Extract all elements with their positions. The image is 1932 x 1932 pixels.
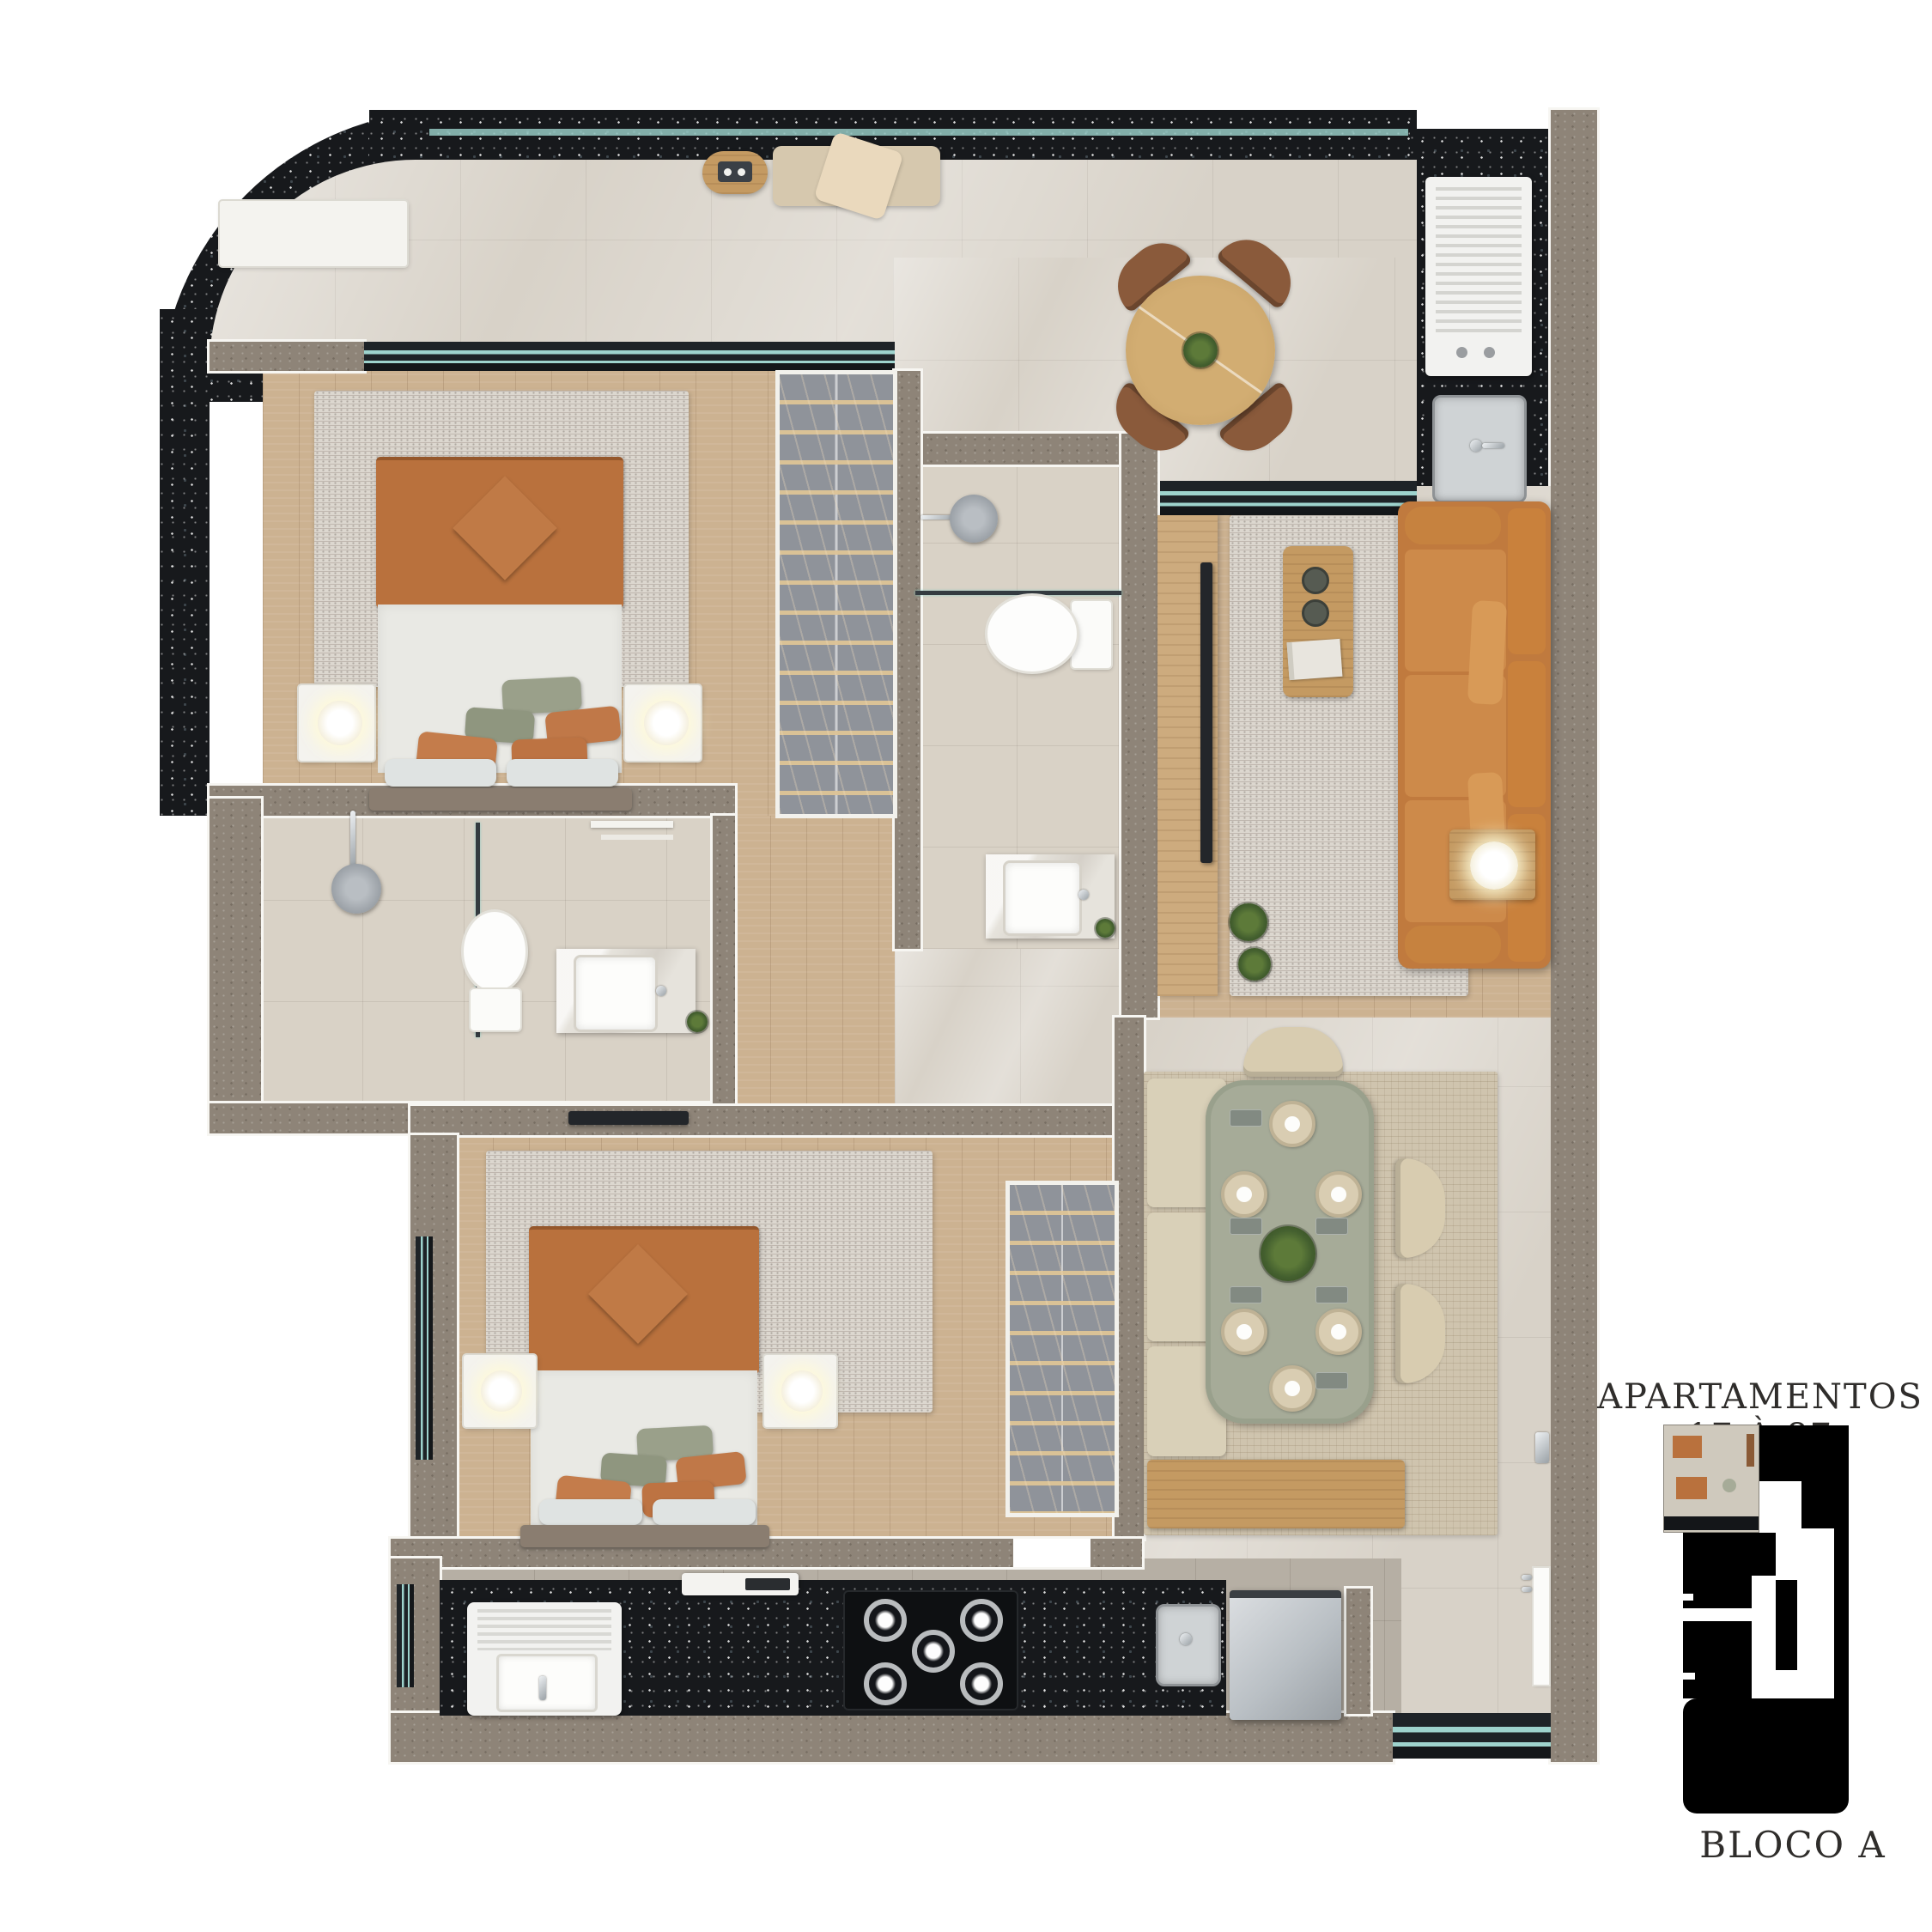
bed2-headboard xyxy=(520,1525,769,1547)
cutlery-set xyxy=(1315,1286,1348,1303)
coffee-cup xyxy=(1302,599,1329,627)
laundry-tub-faucet xyxy=(539,1676,546,1700)
dining-centerpiece-plant xyxy=(1261,1226,1315,1281)
bedroom2-tv xyxy=(568,1111,689,1125)
balcony-glass-railing xyxy=(429,129,1408,136)
bed2-pillow-white xyxy=(539,1499,642,1525)
corridor-floor xyxy=(895,949,1121,1112)
floor-plan-canvas: APARTAMENTOS 17 À 87 xyxy=(0,0,1932,1932)
bathroom2-sink xyxy=(574,955,658,1032)
place-setting-plate xyxy=(1221,1171,1267,1218)
bathroom1-faucet xyxy=(1078,890,1089,900)
bathroom2-shower-arm xyxy=(350,811,355,867)
cooktop-burner xyxy=(864,1662,907,1705)
bathroom1-shower-glass xyxy=(915,591,1121,595)
bathroom2-shower-head xyxy=(331,864,381,914)
living-balcony-window xyxy=(1157,481,1417,515)
bedroom2-wardrobe xyxy=(1010,1185,1115,1513)
cooktop-burner xyxy=(960,1662,1003,1705)
cutlery-set xyxy=(1315,1218,1348,1235)
bedroom2-window xyxy=(416,1236,433,1460)
bed1-pillow-green xyxy=(501,677,582,715)
side-table-tray xyxy=(718,161,752,182)
living-floor-plant xyxy=(1230,903,1267,941)
bed1-pillow-white xyxy=(507,759,618,787)
cutlery-set xyxy=(1230,1109,1262,1127)
bathroom1-toilet-bowl xyxy=(987,596,1077,671)
place-setting-plate xyxy=(1269,1101,1315,1147)
balcony-parapet-left-wall xyxy=(160,309,210,816)
towel-bar xyxy=(601,835,673,840)
cooktop-burner xyxy=(960,1599,1003,1642)
barbecue-sink-faucet xyxy=(1470,440,1482,452)
kitchen-left-window xyxy=(397,1584,414,1687)
bedroom2-door-opening xyxy=(1013,1539,1091,1567)
kitchen-sink-faucet xyxy=(1180,1633,1192,1645)
cooktop-burner xyxy=(864,1599,907,1642)
bedroom2-top-wall xyxy=(410,1106,1115,1135)
keymap-unit-bed2 xyxy=(1676,1477,1707,1499)
bathroom1-living-wall xyxy=(1121,434,1157,1018)
nightstand-lamp xyxy=(644,701,689,745)
nightstand-lamp xyxy=(318,701,362,745)
bathroom1-top-wall xyxy=(895,434,1121,465)
dining-bench-base xyxy=(1147,1460,1405,1528)
tray-cup xyxy=(738,168,745,176)
bathroom2-faucet xyxy=(656,986,666,996)
tv-screen xyxy=(1200,562,1212,863)
keymap-unit-kitchen-counter xyxy=(1664,1516,1759,1530)
cooktop-burner xyxy=(912,1630,955,1673)
hallway-floor xyxy=(734,816,897,1112)
cutlery-set xyxy=(1230,1286,1262,1303)
bathroom1-sink xyxy=(1003,860,1082,936)
keymap-unit-bed1 xyxy=(1673,1436,1702,1458)
bathroom1-shower-head xyxy=(950,495,998,543)
grill-knob xyxy=(1484,347,1495,358)
place-setting-plate xyxy=(1269,1365,1315,1412)
right-exterior-wall xyxy=(1551,110,1597,1762)
sofa-lumbar-cushion xyxy=(1467,600,1507,705)
bottom-exterior-wall xyxy=(391,1713,1393,1762)
grill-knob xyxy=(1456,347,1467,358)
bathroom2-plant xyxy=(687,1012,708,1032)
bathroom1-plant xyxy=(1096,919,1115,938)
kitchen-sink xyxy=(1156,1604,1221,1686)
sofa-back-cushion xyxy=(1508,508,1546,654)
bed1-headboard xyxy=(369,788,632,811)
entry-door-leaf xyxy=(1534,1568,1549,1685)
side-table-lamp xyxy=(1470,841,1518,890)
barbecue-faucet-arm xyxy=(1482,443,1504,448)
fridge-side-pillar xyxy=(1346,1589,1370,1714)
sofa-armrest xyxy=(1405,507,1501,544)
place-setting-plate xyxy=(1221,1309,1267,1355)
bedroom1-top-wall xyxy=(210,342,364,371)
keymap-unit-highlight xyxy=(1664,1425,1759,1532)
grill-grate-lines xyxy=(1436,187,1522,335)
bathroom2-left-wall xyxy=(210,799,261,1133)
living-floor-plant xyxy=(1238,948,1271,981)
bathroom2-hall-wall xyxy=(713,816,735,1112)
coffee-table-book xyxy=(1287,639,1343,680)
towel-bar xyxy=(591,821,673,828)
table-centerpiece-plant xyxy=(1183,333,1218,368)
place-setting-plate xyxy=(1315,1171,1362,1218)
sofa-armrest xyxy=(1405,926,1501,963)
nightstand-lamp xyxy=(781,1370,823,1412)
nightstand-lamp xyxy=(481,1370,522,1412)
bathroom1-toilet-tank xyxy=(1072,601,1111,668)
keymap-unit-sofa xyxy=(1747,1434,1754,1467)
bedroom1-wardrobe xyxy=(780,374,893,814)
refrigerator xyxy=(1230,1590,1341,1720)
wall-faucet-point xyxy=(1535,1432,1549,1463)
balcony-bench-cabinet xyxy=(220,201,407,266)
laundry-tub-basin xyxy=(496,1654,598,1712)
bathroom2-toilet-bowl xyxy=(464,912,526,991)
place-setting-plate xyxy=(1315,1309,1362,1355)
laundry-tub-washboard xyxy=(477,1609,611,1650)
entry-door-handle xyxy=(1522,1587,1532,1592)
entry-door-handle xyxy=(1522,1575,1532,1580)
tray-cup xyxy=(724,168,732,176)
bed1-pillow-white xyxy=(385,759,496,787)
bedroom1-balcony-window xyxy=(364,342,895,371)
block-keymap xyxy=(1664,1425,1922,1814)
keymap-unit-table xyxy=(1722,1479,1736,1492)
cutlery-set xyxy=(1230,1218,1262,1235)
bed2-pillow-white xyxy=(653,1499,756,1525)
kitchen-bottom-window xyxy=(1393,1713,1551,1759)
coffee-cup xyxy=(1302,567,1329,594)
bedroom2-dining-wall xyxy=(1115,1018,1144,1539)
bathroom2-toilet-tank xyxy=(471,989,520,1030)
block-label: BLOCO A xyxy=(1664,1824,1922,1866)
cutlery-set xyxy=(1315,1372,1348,1389)
sofa-back-cushion xyxy=(1508,661,1546,807)
bedroom1-bathroom1-wall xyxy=(895,371,920,949)
utensil-tray-knives xyxy=(745,1578,790,1590)
